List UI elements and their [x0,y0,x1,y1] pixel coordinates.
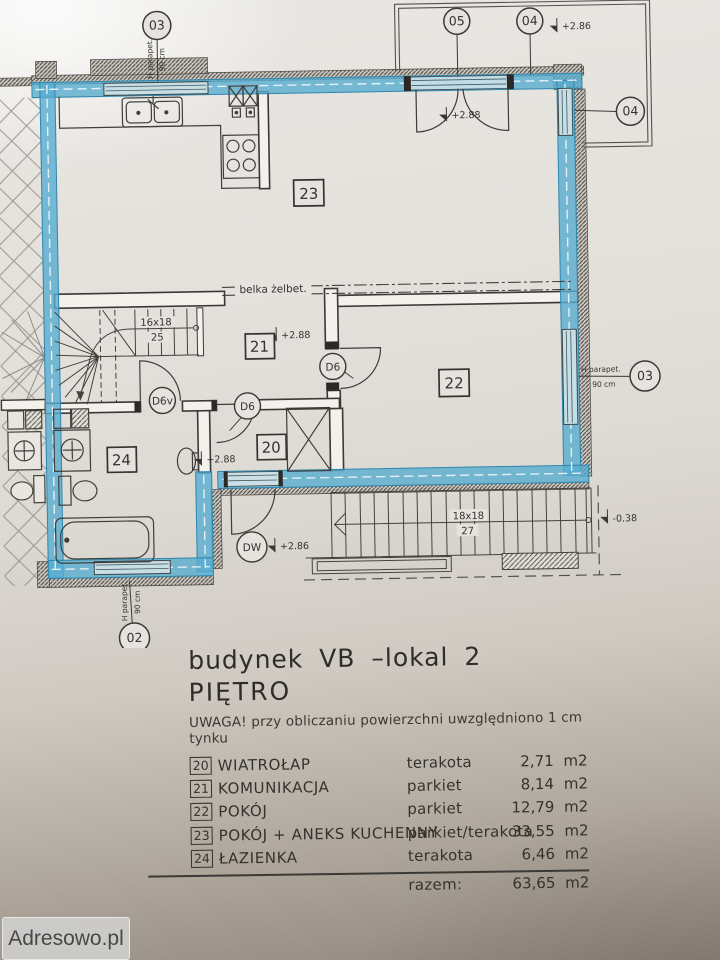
room-area: 2,71 m2 [498,751,588,770]
room-area: 8,14 m2 [498,775,588,794]
window-top [104,82,208,96]
highlighted-walls [32,73,591,579]
marker-03-top-label: 03 [149,17,165,32]
room-no: 20 [190,757,212,775]
window-right-upper [558,88,573,135]
kitchen-fixtures [59,86,260,191]
internal-stairs-count: 25 [151,332,164,343]
door-tag-d6-room22-label: D6 [325,361,340,373]
room-no: 22 [190,803,212,821]
external-stairs-count: 27 [461,526,474,537]
beam-label: belka żelbet. [239,283,306,296]
total-area: 63,65 m2 [499,873,589,892]
room-finish: parkiet [407,776,462,795]
plan-note: UWAGA! przy obliczaniu powierzchni uwzgl… [189,709,589,747]
room-name: KOMUNIKACJA [218,778,330,798]
room-name: ŁAZIENKA [219,848,298,867]
door-tags: D6v D6 D6 DW [149,353,357,564]
door-tag-d6v-label: D6v [152,395,173,407]
bathroom-fixtures [54,407,201,563]
room-number-23: 23 [299,185,318,203]
entrance-door-opening [224,470,283,487]
toilet [59,476,98,506]
kitchen-counter [59,94,260,191]
marker-02-label: 02 [126,630,142,645]
room-area: 12,79 m2 [498,798,588,817]
legend-block: budynek VB –lokal 2 PIĘTRO UWAGA! przy o… [188,640,592,901]
parapet-height-bottom: 90 cm [133,590,142,614]
room-finish: parkiet [407,800,462,819]
level-hall: +2.88 [281,330,310,342]
floor-plan-photo: 16x18 25 18x18 27 [0,0,720,960]
room-finish: terakota [408,846,474,865]
wall-hung-basin [177,448,198,474]
total-label: razem: [408,875,462,894]
door-tag-dw-label: DW [243,542,262,554]
floor-plan-drawing: 16x18 25 18x18 27 [0,0,720,648]
marker-03-right-label: 03 [637,368,653,383]
parapet-height-top: 90 cm [157,48,166,72]
marker-04-right-label: 04 [622,103,638,118]
room-number-20: 20 [262,438,281,456]
watermark: Adresowo.pl [2,917,130,960]
kitchen-sink [122,96,183,127]
room-name: WIATROŁAP [218,755,311,774]
plan-floor: PIĘTRO [188,672,588,707]
marker-05-label: 05 [449,13,465,28]
bathtub [55,517,154,564]
table-row: 24 ŁAZIENKA terakota 6,46 m2 [191,843,589,872]
room-area: 6,46 m2 [499,844,589,863]
level-balcony: +2.86 [562,21,591,33]
room-number-21: 21 [250,338,269,356]
room-name: POKÓJ + ANEKS KUCHENNY [219,823,439,844]
plan-title: budynek VB –lokal 2 [188,640,588,675]
level-vestibule-door: +2.88 [206,454,235,466]
total-row: razem: 63,65 m2 [191,872,589,902]
room-number-22: 22 [444,374,463,392]
room-no: 23 [191,826,213,844]
level-balcony-door: +2.88 [451,110,480,122]
marker-04-top-label: 04 [522,13,538,28]
exterior-insulation [0,51,594,588]
window-right-room22 [562,329,578,424]
room-name: POKÓJ [218,802,267,821]
balcony-door-opening [404,74,514,91]
room-number-24: 24 [112,451,131,469]
stove [223,135,260,179]
parapet-label-right: H parapet. [581,364,621,374]
door-tag-d6-room20-label: D6 [240,401,255,413]
internal-stairs-size: 16x18 [140,317,172,329]
room-no: 21 [190,780,212,798]
external-staircase: 18x18 27 [303,485,627,580]
parapet-label-bottom: H parapet. [120,581,130,621]
external-stairs-size: 18x18 [453,511,485,523]
entrance-door-swing [231,490,276,535]
room-finish: terakota [407,753,473,772]
room-no: 24 [191,849,213,867]
parapet-height-right: 90 cm [592,380,616,389]
vent-shaft-hall [287,408,331,472]
internal-staircase: 16x18 25 [55,309,200,404]
room22-door-swing [340,348,381,389]
room-area: 33,55 m2 [498,821,588,840]
level-entry-landing: +2.86 [280,541,309,553]
wall-centerlines [36,76,586,573]
area-table: 20 WIATROŁAP terakota 2,71 m2 21 KOMUNIK… [190,750,590,901]
parapet-label-top: H parapet. [145,39,155,79]
level-stairs-exit: -0.38 [612,513,637,524]
